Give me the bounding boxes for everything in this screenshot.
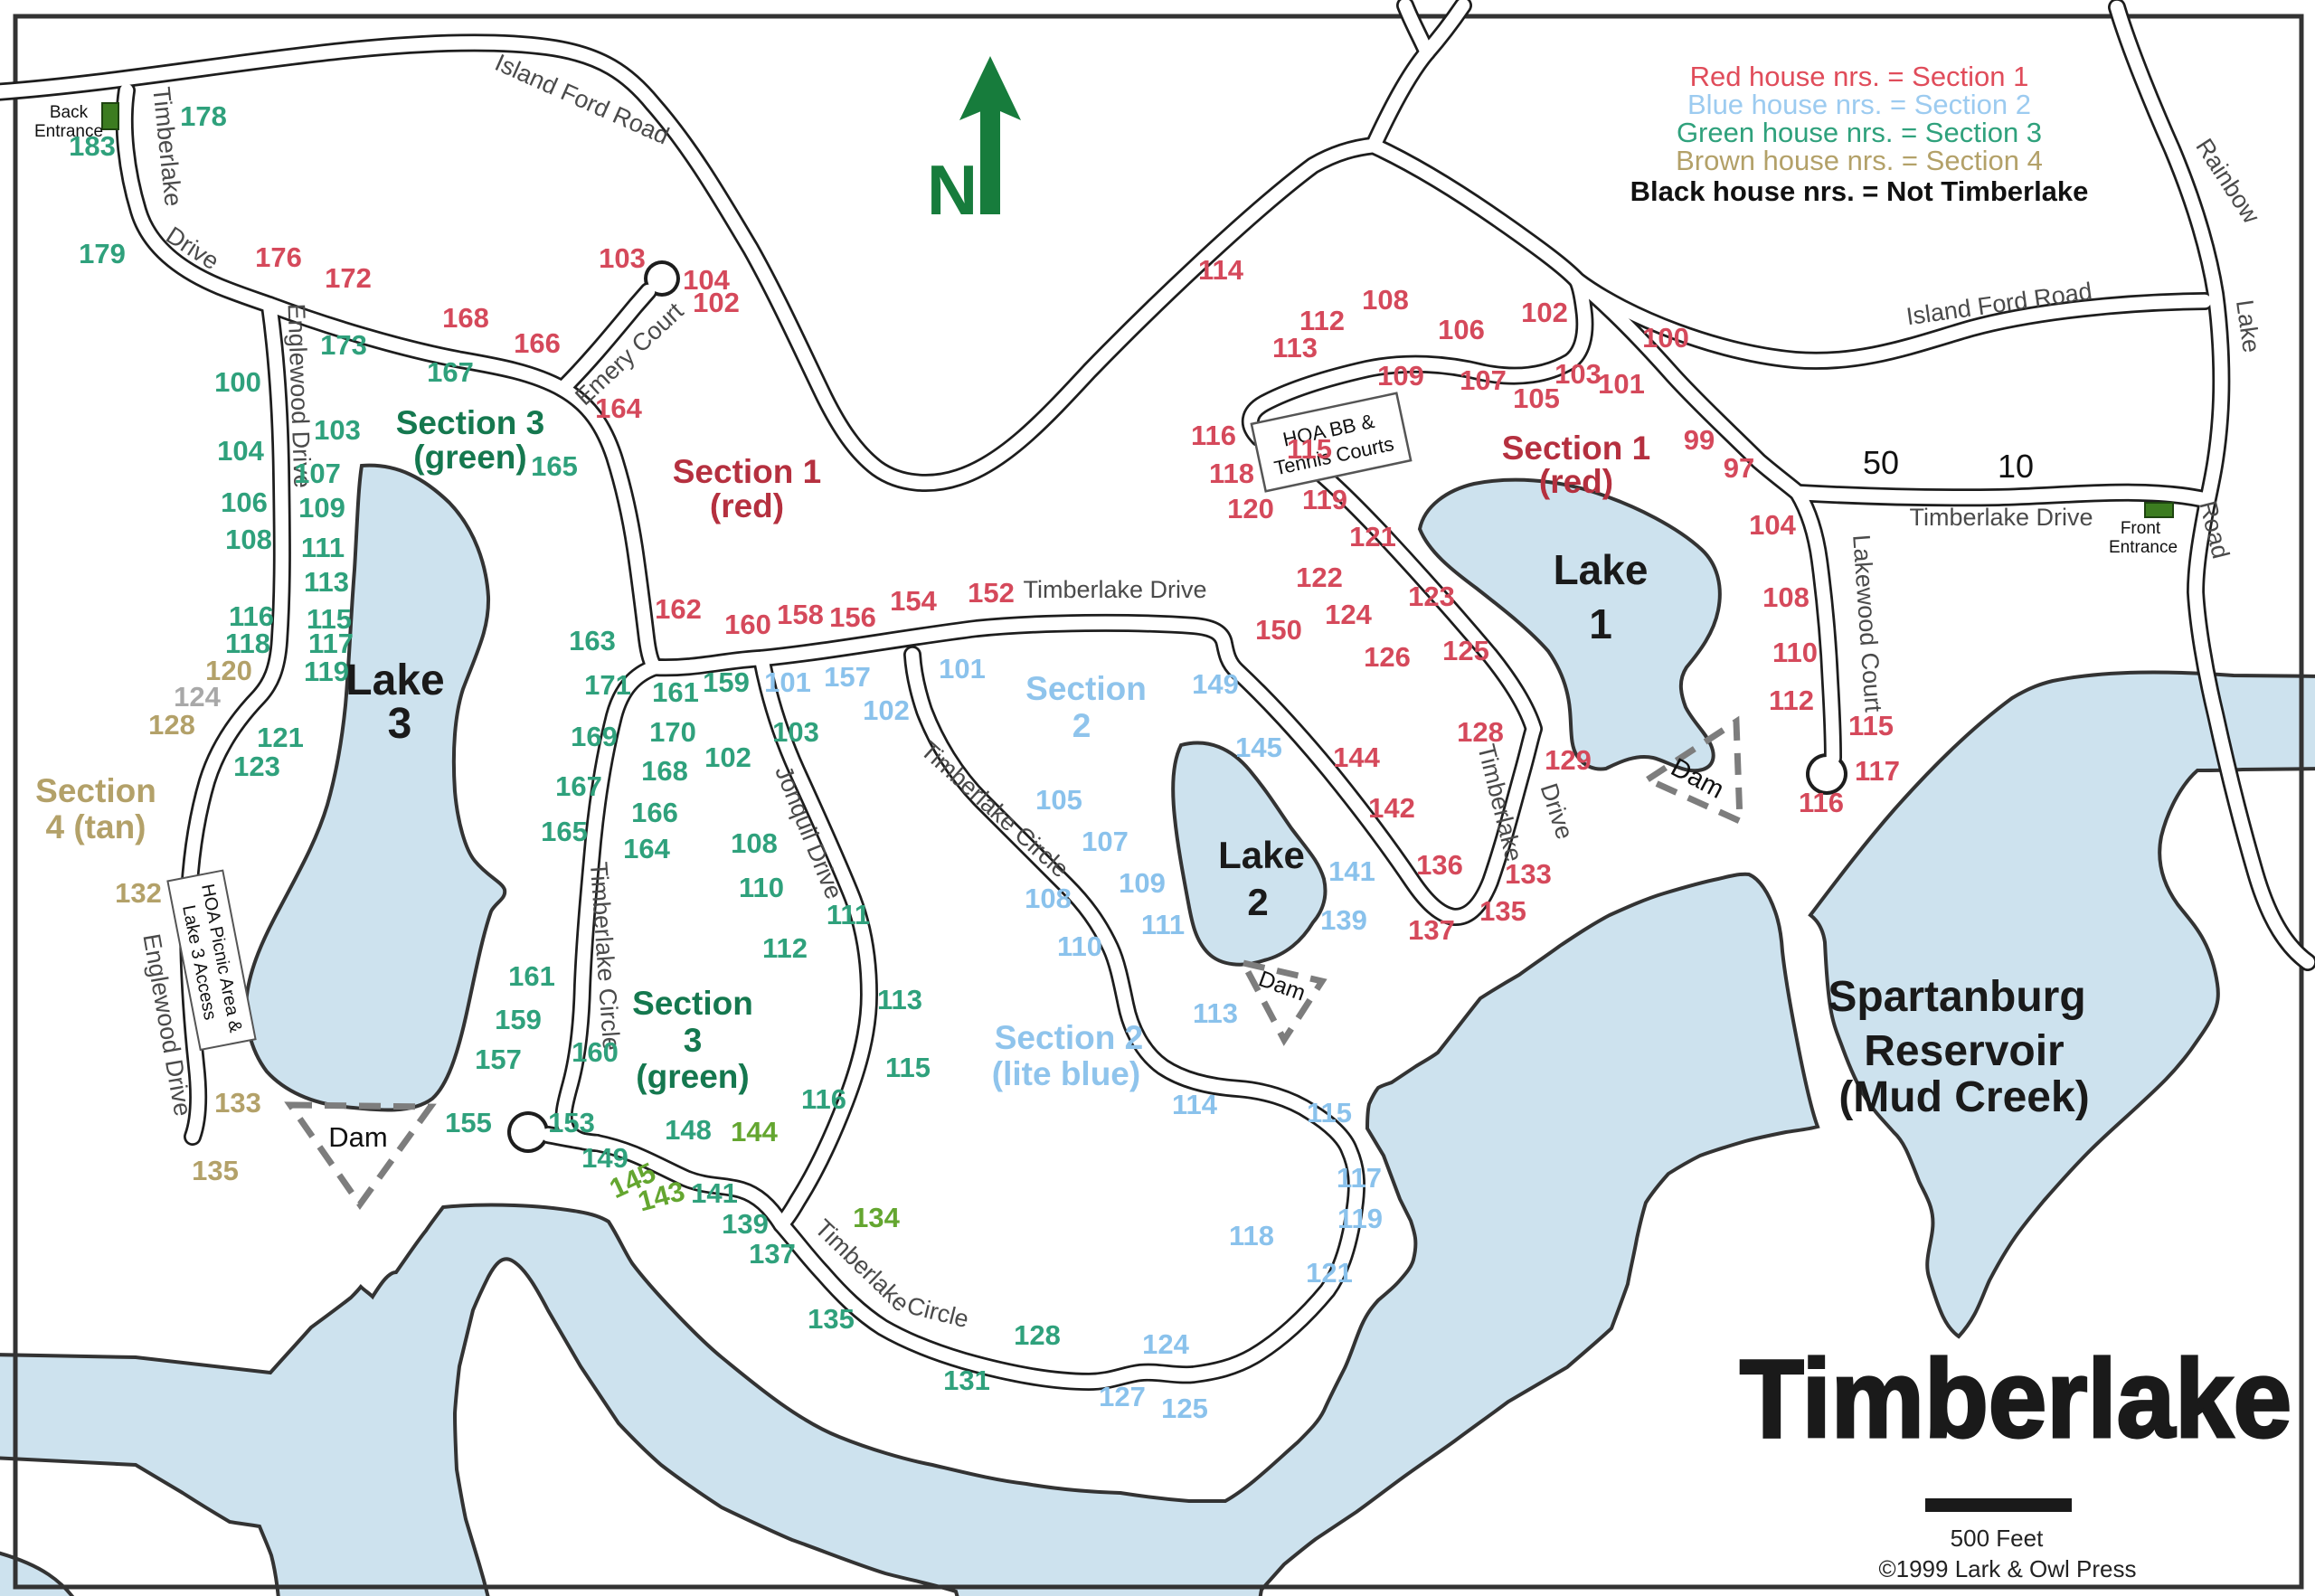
svg-text:©1999 Lark & Owl Press: ©1999 Lark & Owl Press	[1878, 1555, 2136, 1582]
svg-text:110: 110	[1772, 637, 1818, 668]
svg-text:Dam: Dam	[328, 1121, 387, 1153]
svg-text:Front: Front	[2121, 519, 2161, 538]
svg-text:110: 110	[739, 872, 784, 903]
svg-text:Brown house nrs. = Section 4: Brown house nrs. = Section 4	[1676, 145, 2043, 176]
svg-text:105: 105	[1513, 382, 1560, 414]
svg-text:156: 156	[829, 601, 876, 633]
svg-text:131: 131	[943, 1365, 990, 1396]
svg-text:154: 154	[890, 585, 937, 617]
svg-text:136: 136	[1416, 849, 1463, 881]
svg-text:135: 135	[808, 1303, 855, 1335]
svg-text:121: 121	[1306, 1257, 1353, 1289]
svg-text:101: 101	[939, 653, 986, 685]
svg-text:(red): (red)	[1539, 463, 1613, 500]
svg-text:122: 122	[1296, 562, 1343, 593]
svg-text:160: 160	[724, 609, 771, 640]
svg-text:129: 129	[1545, 744, 1592, 776]
svg-text:172: 172	[325, 262, 372, 294]
svg-text:Lake: Lake	[345, 656, 444, 704]
svg-text:103: 103	[772, 716, 819, 748]
svg-text:137: 137	[1408, 914, 1455, 946]
svg-text:159: 159	[703, 666, 750, 698]
svg-text:157: 157	[824, 661, 871, 693]
svg-text:121: 121	[1349, 521, 1396, 552]
svg-text:Lake: Lake	[1218, 834, 1305, 876]
svg-text:110: 110	[1057, 930, 1102, 962]
svg-text:134: 134	[853, 1202, 900, 1233]
svg-text:133: 133	[1505, 858, 1552, 890]
svg-text:125: 125	[1161, 1393, 1208, 1424]
svg-text:165: 165	[531, 450, 578, 482]
svg-text:100: 100	[1642, 322, 1689, 354]
svg-text:105: 105	[1035, 784, 1082, 816]
svg-text:108: 108	[225, 524, 272, 555]
svg-text:(lite blue): (lite blue)	[992, 1055, 1140, 1092]
svg-text:99: 99	[1684, 424, 1715, 456]
svg-text:Timberlake: Timberlake	[1740, 1337, 2291, 1461]
svg-text:118: 118	[1209, 458, 1254, 489]
svg-text:114: 114	[1198, 254, 1244, 286]
svg-text:Back: Back	[50, 103, 89, 122]
svg-text:115: 115	[885, 1052, 931, 1083]
svg-text:111: 111	[827, 899, 870, 930]
svg-text:161: 161	[652, 676, 699, 708]
svg-text:144: 144	[731, 1116, 778, 1147]
svg-text:168: 168	[641, 755, 688, 787]
svg-text:141: 141	[691, 1177, 738, 1209]
svg-text:113: 113	[877, 984, 922, 1015]
svg-text:102: 102	[704, 741, 751, 773]
svg-text:3: 3	[388, 700, 412, 748]
svg-text:139: 139	[722, 1208, 769, 1240]
svg-text:1: 1	[1589, 600, 1612, 647]
svg-text:123: 123	[1408, 581, 1455, 612]
svg-text:127: 127	[1099, 1381, 1146, 1412]
svg-text:133: 133	[214, 1087, 261, 1119]
svg-text:179: 179	[79, 238, 126, 269]
svg-text:108: 108	[731, 827, 778, 859]
svg-text:Section: Section	[35, 772, 156, 809]
svg-text:132: 132	[115, 877, 162, 909]
svg-text:120: 120	[1227, 493, 1274, 524]
svg-text:Spartanburg: Spartanburg	[1828, 973, 2085, 1021]
svg-text:Section: Section	[1025, 670, 1147, 707]
svg-text:167: 167	[427, 356, 474, 388]
svg-text:104: 104	[1749, 509, 1796, 541]
svg-text:111: 111	[301, 532, 345, 563]
svg-text:115: 115	[1848, 710, 1894, 741]
svg-text:109: 109	[1119, 867, 1166, 899]
svg-text:153: 153	[548, 1107, 595, 1138]
svg-text:163: 163	[569, 625, 616, 656]
svg-text:50: 50	[1863, 444, 1899, 481]
svg-text:Red house nrs. = Section 1: Red house nrs. = Section 1	[1690, 61, 2029, 92]
svg-text:112: 112	[1769, 685, 1814, 716]
svg-text:108: 108	[1762, 581, 1809, 613]
svg-text:117: 117	[1855, 755, 1900, 787]
svg-text:(red): (red)	[710, 487, 784, 524]
svg-text:164: 164	[623, 833, 670, 864]
svg-text:97: 97	[1724, 452, 1754, 484]
svg-text:107: 107	[1460, 364, 1507, 396]
svg-text:500 Feet: 500 Feet	[1951, 1525, 2044, 1552]
svg-text:139: 139	[1320, 904, 1367, 936]
svg-text:178: 178	[180, 100, 227, 132]
svg-text:118: 118	[1229, 1220, 1274, 1251]
svg-text:119: 119	[304, 656, 349, 687]
svg-text:124: 124	[1325, 599, 1372, 630]
svg-text:157: 157	[475, 1044, 522, 1075]
svg-text:102: 102	[693, 287, 740, 318]
svg-text:Blue house nrs. = Section 2: Blue house nrs. = Section 2	[1687, 89, 2031, 120]
svg-text:145: 145	[1235, 732, 1282, 763]
svg-text:108: 108	[1025, 883, 1072, 914]
svg-text:176: 176	[255, 241, 302, 273]
svg-text:(green): (green)	[413, 439, 526, 476]
svg-text:(green): (green)	[636, 1058, 749, 1095]
svg-text:106: 106	[1438, 314, 1485, 345]
svg-text:150: 150	[1255, 614, 1302, 646]
svg-text:113: 113	[304, 566, 349, 598]
svg-text:109: 109	[1377, 360, 1424, 392]
svg-text:169: 169	[571, 721, 618, 752]
svg-text:10: 10	[1998, 448, 2034, 485]
svg-text:160: 160	[572, 1036, 619, 1068]
svg-text:Reservoir: Reservoir	[1864, 1027, 2064, 1075]
svg-text:126: 126	[1364, 641, 1411, 673]
svg-text:100: 100	[214, 366, 261, 398]
svg-text:135: 135	[192, 1155, 239, 1186]
svg-text:113: 113	[1272, 332, 1318, 364]
svg-text:101: 101	[764, 666, 811, 698]
svg-text:128: 128	[1014, 1319, 1061, 1351]
svg-text:128: 128	[1457, 716, 1504, 748]
svg-text:137: 137	[749, 1238, 796, 1270]
svg-text:107: 107	[1082, 826, 1129, 857]
svg-text:124: 124	[1142, 1328, 1189, 1360]
svg-text:116: 116	[1191, 420, 1236, 451]
svg-text:125: 125	[1442, 635, 1489, 666]
svg-text:166: 166	[631, 797, 678, 828]
svg-text:116: 116	[801, 1083, 846, 1115]
svg-text:119: 119	[1337, 1203, 1383, 1234]
svg-text:Section 1: Section 1	[1502, 430, 1651, 467]
svg-text:158: 158	[777, 599, 824, 630]
svg-text:142: 142	[1368, 792, 1415, 824]
svg-text:102: 102	[863, 694, 910, 726]
svg-text:171: 171	[584, 669, 631, 701]
svg-text:167: 167	[555, 770, 602, 802]
svg-text:135: 135	[1479, 895, 1526, 927]
svg-text:Black house nrs. = Not Timbe: Black house nrs. = Not Timberlake	[1630, 175, 2089, 207]
svg-text:162: 162	[655, 593, 702, 625]
svg-text:114: 114	[1172, 1089, 1218, 1120]
svg-text:Section: Section	[632, 985, 753, 1022]
svg-text:183: 183	[69, 130, 116, 162]
svg-text:113: 113	[1193, 997, 1238, 1029]
svg-text:159: 159	[495, 1004, 542, 1035]
svg-text:121: 121	[257, 722, 304, 753]
svg-text:144: 144	[1333, 741, 1380, 773]
svg-text:Timberlake Drive: Timberlake Drive	[1909, 504, 2093, 531]
svg-text:119: 119	[1302, 484, 1347, 515]
svg-text:117: 117	[1337, 1162, 1382, 1194]
svg-text:(Mud Creek): (Mud Creek)	[1838, 1073, 2089, 1121]
svg-text:Entrance: Entrance	[2109, 538, 2178, 557]
svg-text:104: 104	[217, 435, 264, 467]
svg-text:4 (tan): 4 (tan)	[46, 808, 146, 845]
svg-text:166: 166	[514, 327, 561, 359]
svg-text:112: 112	[762, 932, 808, 964]
svg-text:2: 2	[1247, 881, 1268, 923]
svg-text:173: 173	[320, 329, 367, 361]
svg-text:117: 117	[308, 628, 354, 659]
svg-text:2: 2	[1072, 707, 1091, 744]
svg-text:128: 128	[148, 709, 195, 741]
svg-text:115: 115	[1307, 1097, 1352, 1129]
svg-text:Section 1: Section 1	[673, 453, 822, 490]
svg-text:103: 103	[314, 414, 361, 446]
svg-text:116: 116	[1799, 787, 1844, 818]
svg-text:141: 141	[1328, 855, 1375, 887]
svg-text:123: 123	[233, 751, 280, 782]
svg-text:165: 165	[541, 816, 588, 847]
svg-text:149: 149	[1192, 668, 1239, 700]
svg-text:170: 170	[649, 716, 696, 748]
svg-text:Timberlake Drive: Timberlake Drive	[1023, 576, 1206, 603]
svg-text:101: 101	[1598, 368, 1645, 400]
svg-text:155: 155	[445, 1107, 492, 1138]
svg-text:102: 102	[1521, 297, 1568, 328]
svg-text:Section 2: Section 2	[995, 1019, 1144, 1056]
svg-text:103: 103	[1554, 358, 1602, 390]
svg-text:106: 106	[221, 486, 268, 518]
svg-text:111: 111	[1141, 909, 1185, 940]
svg-text:152: 152	[968, 577, 1015, 609]
svg-text:3: 3	[684, 1022, 703, 1059]
svg-text:Lake: Lake	[1554, 546, 1649, 593]
svg-text:164: 164	[595, 392, 642, 424]
svg-text:109: 109	[298, 492, 345, 524]
svg-text:168: 168	[442, 302, 489, 334]
svg-text:108: 108	[1362, 284, 1409, 316]
svg-text:107: 107	[294, 458, 341, 489]
svg-text:N: N	[927, 150, 978, 230]
svg-text:161: 161	[508, 960, 555, 992]
svg-text:Green house nrs. = Section 3: Green house nrs. = Section 3	[1677, 117, 2042, 148]
svg-text:115: 115	[1287, 433, 1332, 465]
svg-text:Section 3: Section 3	[396, 404, 545, 441]
svg-text:124: 124	[174, 681, 221, 713]
svg-text:103: 103	[599, 242, 646, 274]
svg-text:148: 148	[665, 1114, 712, 1146]
